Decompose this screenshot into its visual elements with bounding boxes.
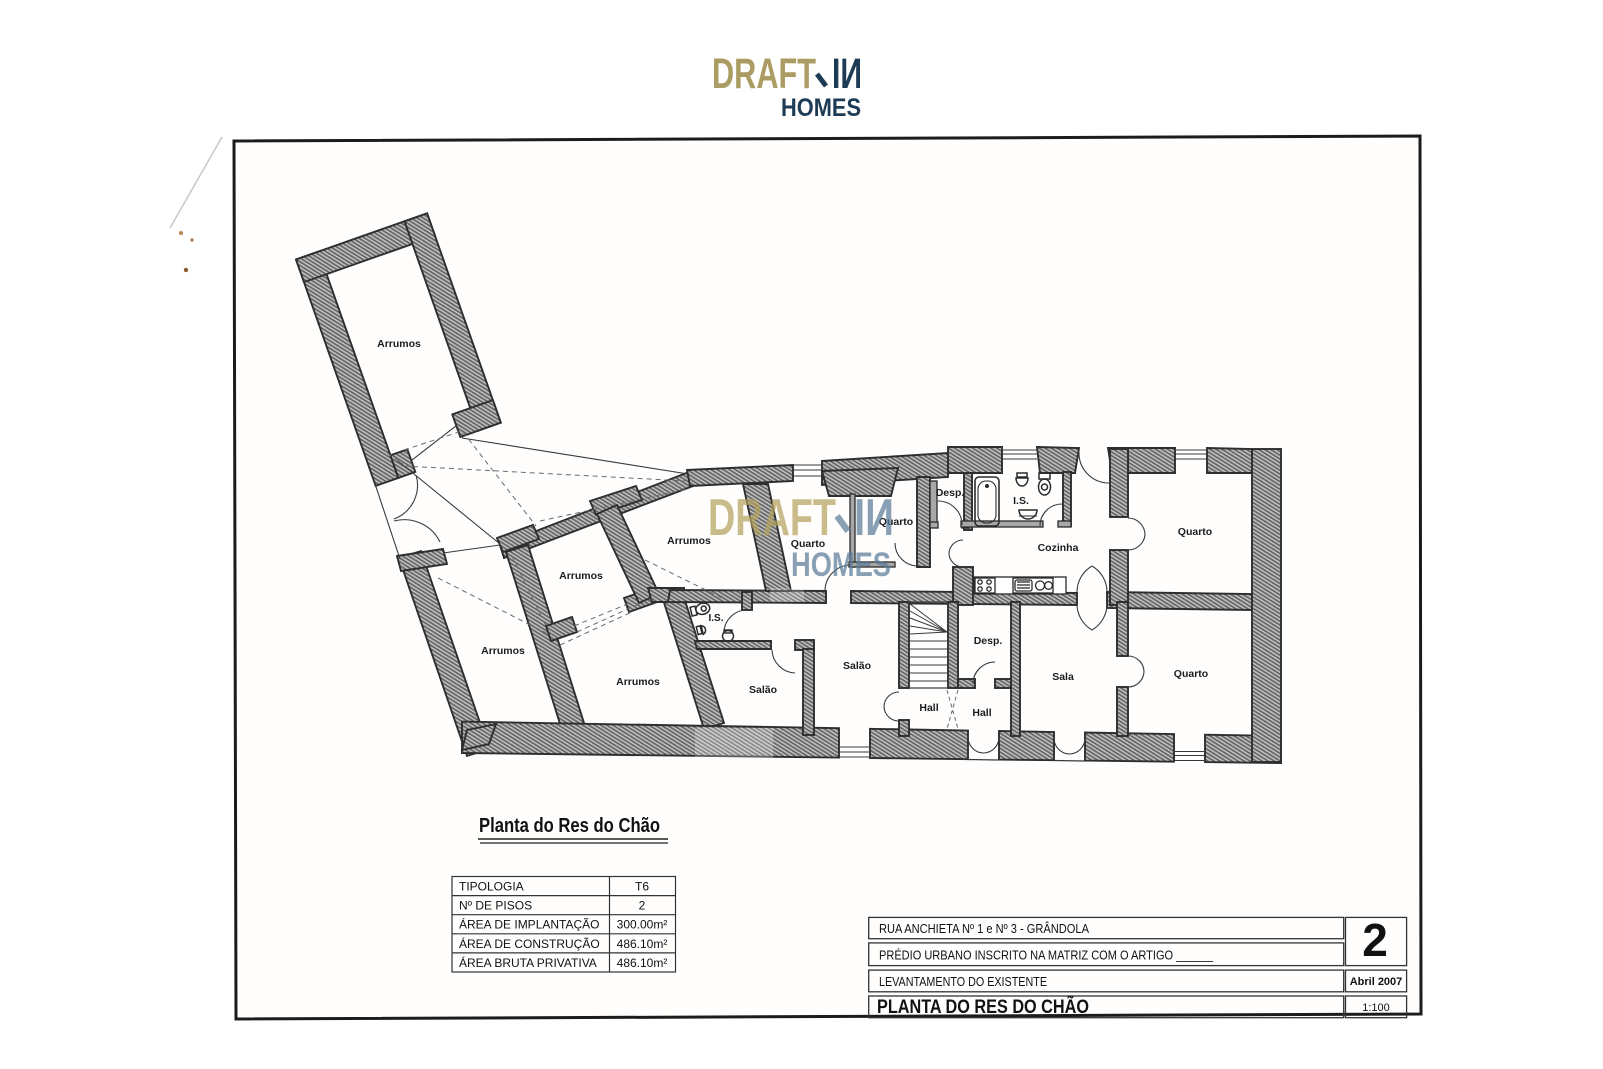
svg-text:PLANTA DO RES DO CHÃO: PLANTA DO RES DO CHÃO [877,995,1089,1018]
svg-text:ÁREA DE IMPLANTAÇÃO: ÁREA DE IMPLANTAÇÃO [459,917,599,932]
svg-text:Arrumos: Arrumos [667,535,711,547]
svg-text:TIPOLOGIA: TIPOLOGIA [459,880,524,894]
svg-text:T6: T6 [635,880,649,894]
svg-text:Salão: Salão [749,684,777,696]
svg-text:I.S.: I.S. [1013,495,1029,507]
svg-text:LEVANTAMENTO DO EXISTENTE: LEVANTAMENTO DO EXISTENTE [879,974,1047,989]
svg-text:Quarto: Quarto [1178,526,1212,538]
svg-text:Sala: Sala [1052,671,1074,683]
svg-text:PRÉDIO URBANO INSCRITO NA MATR: PRÉDIO URBANO INSCRITO NA MATRIZ COM O A… [879,948,1214,963]
svg-text:2: 2 [639,899,646,913]
svg-text:IИ: IИ [854,489,894,547]
svg-text:DRAFT: DRAFT [712,50,816,98]
svg-text:RUA ANCHIETA Nº 1 e Nº 3 - GRÂ: RUA ANCHIETA Nº 1 e Nº 3 - GRÂNDOLA [879,921,1089,936]
svg-text:Cozinha: Cozinha [1038,542,1079,554]
svg-text:ÁREA BRUTA PRIVATIVA: ÁREA BRUTA PRIVATIVA [459,955,597,970]
svg-text:DRAFT: DRAFT [708,489,836,547]
svg-text:Hall: Hall [919,702,938,714]
svg-text:I.S.: I.S. [708,613,723,624]
svg-text:300.00m²: 300.00m² [617,918,668,932]
svg-text:Arrumos: Arrumos [481,645,525,657]
svg-text:Arrumos: Arrumos [377,338,421,350]
svg-text:2: 2 [1362,914,1388,966]
svg-text:1:100: 1:100 [1362,1002,1390,1014]
svg-text:Arrumos: Arrumos [616,676,660,688]
svg-text:Quarto: Quarto [1174,668,1208,680]
svg-text:Hall: Hall [972,707,991,719]
svg-text:HOMES: HOMES [781,94,861,122]
svg-text:Planta do Res do Chão: Planta do Res do Chão [479,815,660,837]
svg-text:IИ: IИ [832,50,862,98]
svg-text:486.10m²: 486.10m² [617,956,668,970]
svg-text:HOMES: HOMES [791,546,891,584]
svg-text:Desp.: Desp. [936,487,965,499]
svg-text:486.10m²: 486.10m² [617,937,668,951]
svg-text:Nº DE PISOS: Nº DE PISOS [459,899,532,913]
svg-text:Arrumos: Arrumos [559,570,603,582]
svg-text:Desp.: Desp. [974,635,1003,647]
svg-text:Salão: Salão [843,660,871,672]
svg-text:ÁREA DE CONSTRUÇÃO: ÁREA DE CONSTRUÇÃO [459,936,600,951]
svg-text:Abril 2007: Abril 2007 [1350,976,1403,988]
